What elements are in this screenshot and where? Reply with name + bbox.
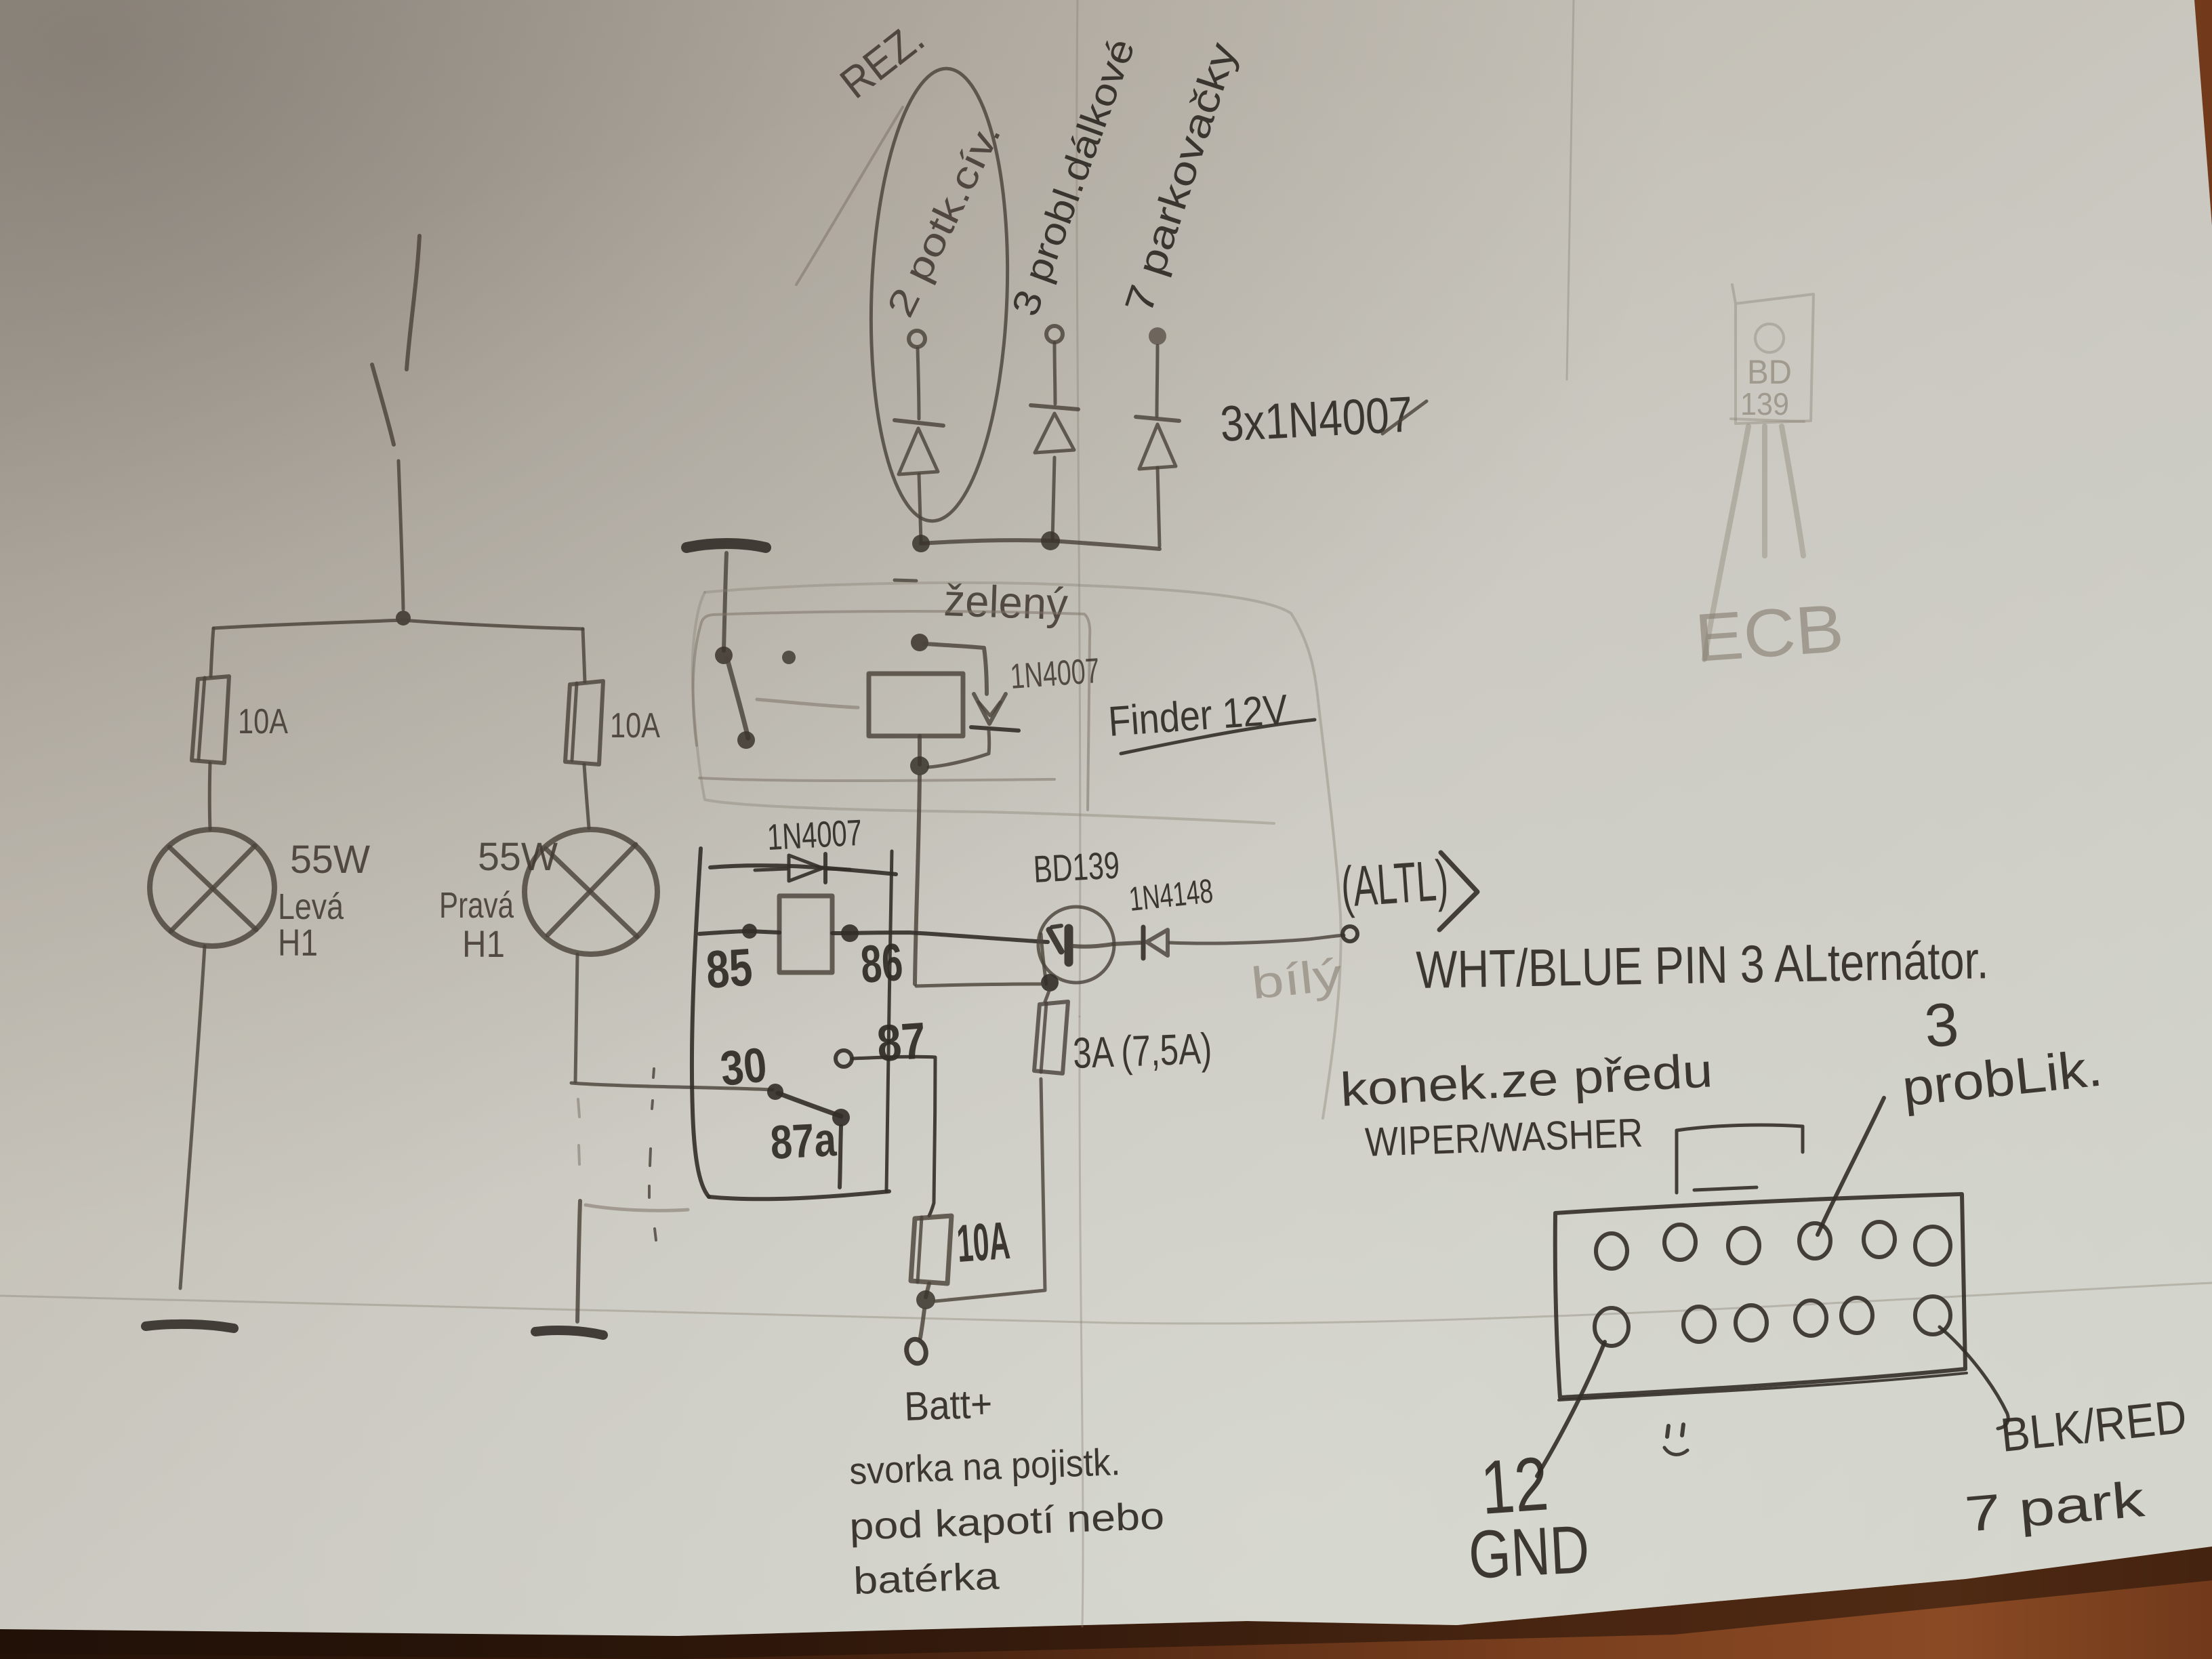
svg-text:85: 85 [704,937,754,1000]
svg-text:GND: GND [1467,1511,1591,1593]
svg-text:batérka: batérka [853,1554,1000,1601]
svg-text:Pravá: Pravá [439,885,514,926]
svg-text:139: 139 [1740,386,1789,422]
svg-text:3: 3 [1922,991,1961,1061]
svg-text:87a: 87a [769,1113,838,1169]
svg-text:bílý: bílý [1249,949,1345,1008]
svg-text:1N4007: 1N4007 [1009,651,1101,697]
svg-text:3x1N4007: 3x1N4007 [1218,386,1414,452]
svg-text:86: 86 [859,932,905,994]
svg-text:H1: H1 [462,922,505,965]
svg-text:ECB: ECB [1693,590,1846,676]
svg-text:(ALTL): (ALTL) [1339,848,1450,919]
svg-text:BD: BD [1747,353,1792,391]
svg-text:10A: 10A [610,706,660,745]
svg-text:Batt+: Batt+ [903,1380,993,1429]
svg-text:10A: 10A [238,702,288,741]
svg-text:WIPER/WASHER: WIPER/WASHER [1364,1110,1643,1165]
svg-text:BD139: BD139 [1032,843,1120,890]
svg-text:30: 30 [718,1038,769,1097]
svg-text:10A: 10A [955,1210,1012,1273]
svg-text:55W: 55W [478,835,558,879]
svg-text:87: 87 [875,1012,928,1073]
svg-text:1N4007: 1N4007 [766,813,863,858]
svg-text:3A (7,5A): 3A (7,5A) [1072,1024,1212,1078]
svg-text:55W: 55W [290,838,370,882]
svg-text:H1: H1 [278,921,318,964]
svg-text:WHT/BLUE PIN 3 ALternátor.: WHT/BLUE PIN 3 ALternátor. [1416,930,1989,1000]
